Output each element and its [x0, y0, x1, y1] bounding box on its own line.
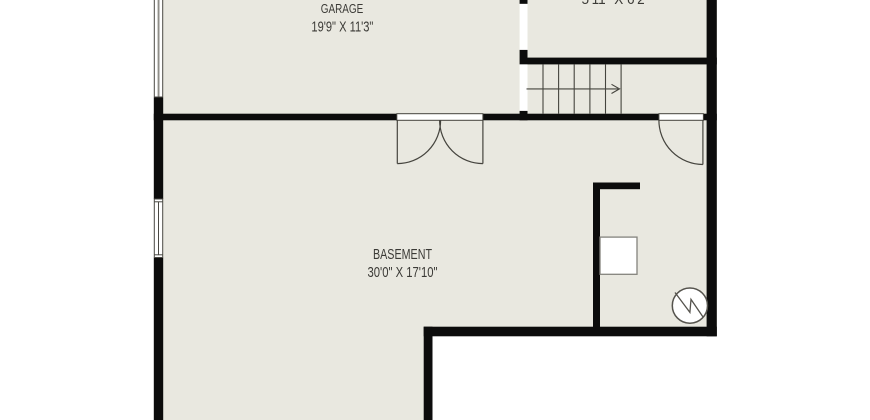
svg-text:30'0" X 17'10": 30'0" X 17'10" [368, 264, 438, 281]
svg-text:5'11" X 6'2": 5'11" X 6'2" [582, 0, 650, 8]
svg-text:19'9" X 11'3": 19'9" X 11'3" [311, 19, 373, 36]
svg-text:GARAGE: GARAGE [321, 1, 364, 16]
svg-text:BASEMENT: BASEMENT [373, 247, 432, 263]
